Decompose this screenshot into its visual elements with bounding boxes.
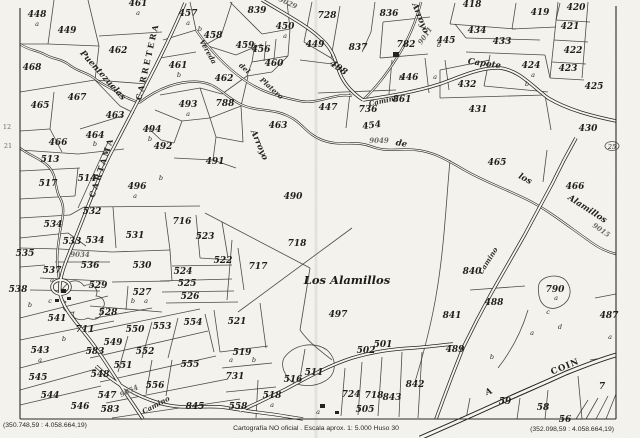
parcel-number: 463 <box>269 121 288 131</box>
parcel-number: 420 <box>567 3 587 13</box>
parcel-number: 422 <box>564 46 583 56</box>
parcel-number: 583 <box>101 405 120 415</box>
parcel-number: 546 <box>71 402 91 412</box>
parcel-number: 466 <box>49 138 69 148</box>
parcel-number: 433 <box>493 37 512 47</box>
subparcel-letter: a <box>133 192 137 200</box>
parcel-number: 718 <box>288 239 308 249</box>
stream-name: de <box>395 138 408 150</box>
subparcel-letter: a <box>433 73 437 81</box>
building-mark <box>320 404 325 408</box>
parcel-number: 7 <box>599 382 606 392</box>
parcel-number: 529 <box>89 281 109 291</box>
parcel-number: 845 <box>186 402 205 412</box>
parcel-number: 450 <box>276 22 296 32</box>
parcel-number: 522 <box>214 256 233 266</box>
parcel-number: 839 <box>248 6 268 16</box>
parcel-number: 431 <box>469 105 488 115</box>
parcel-number: 468 <box>23 63 43 73</box>
parcel-number: 836 <box>380 9 400 19</box>
parcel-number: 788 <box>216 99 236 109</box>
parcel-number: 711 <box>76 325 95 335</box>
parcel-number: 543 <box>31 346 50 356</box>
subparcel-letter: a <box>38 356 42 364</box>
parcel-number: 463 <box>106 111 125 121</box>
building-mark <box>61 289 66 293</box>
parcel-number: 488 <box>485 298 505 308</box>
parcel-number: 547 <box>98 391 118 401</box>
subparcel-letter: b <box>437 41 441 49</box>
subparcel-letter: 25 <box>607 143 616 151</box>
parcel-number: 497 <box>329 310 349 320</box>
parcel-number: 457 <box>179 9 199 19</box>
parcel-number: 718 <box>365 391 385 401</box>
map-caption: Cartografía NO oficial . Escala aprox. 1… <box>233 425 399 432</box>
parcel-number: 541 <box>48 314 67 324</box>
subparcel-letter: c <box>546 308 550 316</box>
subparcel-letter: b <box>177 71 181 79</box>
parcel-number: 505 <box>356 405 375 415</box>
parcel-number: 492 <box>154 142 173 152</box>
parcel-number: 465 <box>31 101 50 111</box>
parcel-number: 554 <box>184 318 203 328</box>
survey-number: 9034 <box>70 250 90 259</box>
parcel-number: 58 <box>537 403 550 413</box>
subparcel-letter: a <box>186 110 190 118</box>
parcel-number: 524 <box>174 267 193 277</box>
parcel-number: 489 <box>446 345 466 355</box>
building-mark <box>55 299 59 302</box>
subparcel-letter: a <box>530 329 534 337</box>
building-mark <box>67 297 71 300</box>
parcel-number: 553 <box>153 322 172 332</box>
parcel-number: 461 <box>129 0 148 9</box>
subparcel-letter: b <box>525 80 529 88</box>
subparcel-letter: b <box>62 335 66 343</box>
parcel-number: 521 <box>228 317 247 327</box>
parcel-number: 421 <box>561 22 580 32</box>
parcel-number: 528 <box>99 308 119 318</box>
subparcel-letter: a <box>229 356 233 364</box>
subparcel-letter: a <box>186 19 190 27</box>
parcel-number: 491 <box>206 157 225 167</box>
map-canvas: 448a449461a462468467465463464b466494b492… <box>0 0 640 438</box>
parcel-number: 423 <box>559 64 578 74</box>
parcel-number: 536 <box>81 261 101 271</box>
parcel-number: 59 <box>499 397 512 407</box>
parcel-number: 490 <box>284 192 304 202</box>
subparcel-letter: a <box>35 20 39 28</box>
parcel-number: 535 <box>16 249 35 259</box>
parcel-number: 530 <box>133 261 153 271</box>
parcel-number: 456 <box>252 45 272 55</box>
survey-number: 9049 <box>369 136 389 145</box>
parcel-number: 537 <box>43 266 63 276</box>
subparcel-letter: a <box>50 276 54 284</box>
parcel-number: 782 <box>397 40 416 50</box>
scanned-cadastral-map: 448a449461a462468467465463464b466494b492… <box>0 0 640 438</box>
subparcel-letter: a <box>136 9 140 17</box>
parcel-number: 434 <box>468 26 487 36</box>
parcel-number: 555 <box>181 360 200 370</box>
parcel-number: 551 <box>114 361 133 371</box>
subparcel-letter: b <box>252 356 256 364</box>
parcel-number: 496 <box>128 182 148 192</box>
parcel-number: 534 <box>86 236 105 246</box>
parcel-number: 447 <box>319 103 339 113</box>
parcel-number: 523 <box>196 232 215 242</box>
subparcel-letter: a <box>283 32 287 40</box>
parcel-number: 558 <box>229 402 249 412</box>
parcel-number: 494 <box>143 125 162 135</box>
parcel-number: 511 <box>305 368 324 378</box>
parcel-number: 717 <box>249 262 269 272</box>
parcel-number: 517 <box>39 179 59 189</box>
subparcel-letter: a <box>144 297 148 305</box>
parcel-number: 545 <box>29 373 48 383</box>
subparcel-letter: b <box>159 174 163 182</box>
parcel-number: 56 <box>559 415 572 425</box>
subparcel-letter: b <box>131 297 135 305</box>
parcel-number: 425 <box>585 82 604 92</box>
parcel-number: 518 <box>263 391 283 401</box>
subparcel-letter: a <box>554 294 558 302</box>
parcel-number: 448 <box>28 10 48 20</box>
parcel-number: 516 <box>284 375 304 385</box>
corner-coordinates-right: (352.098,59 : 4.058.664,19) <box>530 426 614 433</box>
parcel-number: 549 <box>104 338 124 348</box>
parcel-number: 424 <box>522 61 541 71</box>
parcel-number: 461 <box>169 61 188 71</box>
parcel-number: 525 <box>178 279 197 289</box>
subparcel-letter: d <box>558 323 562 331</box>
parcel-number: 556 <box>146 381 166 391</box>
parcel-number: 487 <box>600 311 620 321</box>
parcel-number: 724 <box>342 390 361 400</box>
subparcel-letter: b <box>93 140 97 148</box>
parcel-number: 731 <box>226 372 245 382</box>
parcel-number: 716 <box>173 217 193 227</box>
subparcel-letter: b <box>28 301 32 309</box>
building-mark <box>393 52 399 57</box>
subparcel-letter: b <box>148 135 152 143</box>
parcel-number: 465 <box>488 158 507 168</box>
parcel-number: 837 <box>349 43 369 53</box>
parcel-number: 842 <box>406 380 425 390</box>
parcel-number: 548 <box>91 370 111 380</box>
subparcel-letter: b <box>399 74 403 82</box>
parcel-number: 519 <box>233 348 253 358</box>
parcel-number: 728 <box>318 11 338 21</box>
parcel-number: 552 <box>136 347 155 357</box>
parcel-number: 550 <box>126 325 146 335</box>
subparcel-letter: c <box>48 297 52 305</box>
parcel-number: 462 <box>109 46 128 56</box>
parcel-number: 534 <box>44 220 63 230</box>
parcel-number: 502 <box>357 346 376 356</box>
parcel-number: 513 <box>41 155 60 165</box>
parcel-number: 432 <box>458 80 477 90</box>
parcel-number: 531 <box>126 231 145 241</box>
parcel-number: 430 <box>579 124 599 134</box>
parcel-number: 583 <box>86 347 105 357</box>
parcel-number: 493 <box>179 100 198 110</box>
corner-coordinates-left: (350.748,59 : 4.058.664,19) <box>3 422 87 429</box>
margin-mark: 12 <box>3 123 11 131</box>
parcel-number: 467 <box>68 93 88 103</box>
parcel-number: 544 <box>41 391 60 401</box>
subparcel-letter: a <box>531 71 535 79</box>
parcel-number: 501 <box>374 340 393 350</box>
subparcel-letter: a <box>608 333 612 341</box>
parcel-number: 533 <box>63 237 82 247</box>
parcel-number: 538 <box>9 285 29 295</box>
margin-mark: 21 <box>4 142 12 150</box>
parcel-number: 449 <box>58 26 78 36</box>
parcel-number: 526 <box>181 292 201 302</box>
parcel-number: 841 <box>443 311 462 321</box>
parcel-number: 462 <box>215 74 234 84</box>
parcel-number: 466 <box>566 182 586 192</box>
parcel-number: 419 <box>531 8 551 18</box>
subparcel-letter: b <box>490 353 494 361</box>
parcel-number: 527 <box>133 288 153 298</box>
parcel-number: 843 <box>383 393 402 403</box>
building-mark <box>335 411 339 414</box>
subparcel-letter: a <box>270 401 274 409</box>
parcel-number: 460 <box>265 59 285 69</box>
parcel-number: 418 <box>463 0 483 10</box>
parcel-number: 532 <box>83 207 102 217</box>
subparcel-letter: b <box>198 25 202 33</box>
